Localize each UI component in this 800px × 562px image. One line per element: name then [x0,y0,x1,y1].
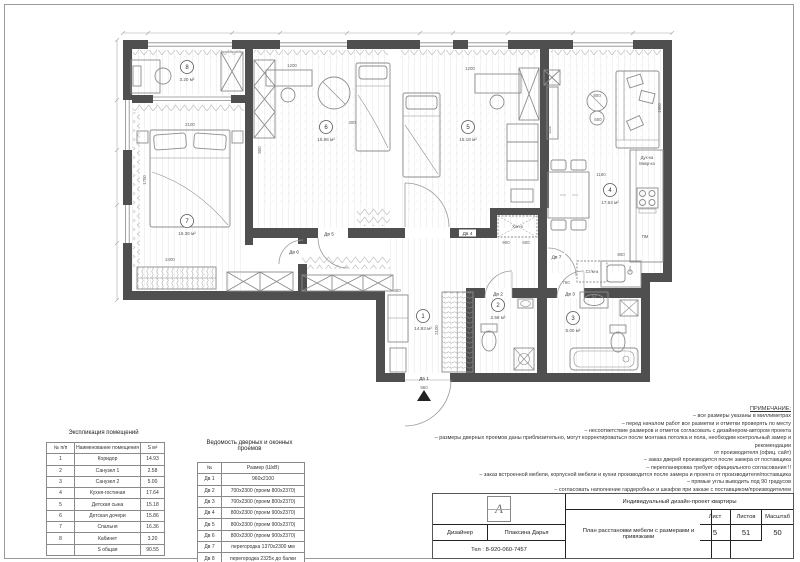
table-row: 4Кухня-гостиная17.64 [47,488,165,499]
sheet-value: 5 [700,525,731,541]
table-row: Дв 6800х2300 (проем 900х2370) [198,530,305,541]
table-row: Дв 8перегородка 2325х до балки [198,553,305,562]
door-label-6: Дв 6 [286,248,302,256]
oven-label: Дух-ка [641,155,654,160]
dim-label: 800 [593,93,601,98]
table-header-row: № п/п Наименование помещения S м² [47,443,165,454]
explication-table: № п/п Наименование помещения S м² 1Корид… [46,442,165,556]
door-label-4: Дв 4 [459,230,476,238]
dim-label: 400 [348,120,356,125]
note-line: – заказ дверей производится после замера… [420,457,791,464]
glass-partition [153,97,231,101]
dim-label: 415 [547,126,552,134]
dim-label: 900 [502,240,510,245]
table-row: 8Кабинет3.20 [47,533,165,544]
wardrobe [302,275,393,291]
svg-text:17.64 м²: 17.64 м² [601,200,619,205]
window [573,40,633,49]
dim-label: 1700 [142,175,147,185]
dim-label: 2100 [434,325,439,335]
dim-label: 1900 [657,103,662,113]
table-row: 7Спальня16.36 [47,522,165,533]
dim-label: 1200 [287,63,297,68]
note-line: – перепланировка требует официального со… [420,465,791,472]
svg-text:14.93 м²: 14.93 м² [414,326,432,331]
table-row: 2Санузел 12.58 [47,465,165,476]
window [280,40,347,49]
door-label-1: Дв 1 [419,376,429,382]
phone-cell: Тел : 8-920-060-7457 [433,541,566,558]
svg-text:16.36 м²: 16.36 м² [178,231,196,236]
door-label-7: Дв 7 [548,253,565,261]
microwave-label: Микр-ка [639,161,655,166]
sheets-value: 51 [731,525,762,541]
titleblock: A Дизайнер Плаксина Дарья Тел : 8-920-06… [432,493,794,559]
table-row: Дв 2700х2300 (проем 800х2370) [198,485,305,496]
col-header: Размер (ШхВ) [222,463,305,474]
floor-plan: 114.93 м² 22.58 м² 35.00 м² 417.64 м² 51… [0,0,800,430]
table-row: Дв 5800х2300 (проем 900х2370) [198,519,305,530]
col-header: № п/п [47,443,75,454]
dim-label: 760 [562,280,570,285]
door-label-2: Дв 2 [493,292,503,298]
col-header: S м² [141,443,165,454]
dim-label: 960 [420,385,428,390]
notes: ПРИМЕЧАНИЕ: – все размеры указаны в милл… [420,406,791,494]
table-row: S общая90.55 [47,544,165,555]
dishwasher-label: ПМ [642,234,649,239]
dim-label: 600 [522,240,530,245]
table-row: 5Детская сына15.18 [47,499,165,510]
table-header-row: № Размер (ШхВ) [198,463,305,474]
window [123,100,132,150]
note-line: – размеры дверных проемов даны приблизит… [420,435,791,450]
window [123,205,132,243]
svg-text:Дв 6: Дв 6 [289,250,299,256]
window [468,40,508,49]
dim-label: 1200 [465,66,475,71]
dim-label: 800 [617,252,625,257]
openings-title: Ведомость дверных и оконных проемов [197,440,302,452]
sheets-label: Листов [731,510,762,525]
col-header: № [198,463,222,474]
door-label-5: Дв 5 [324,232,334,238]
table-row: Дв 7перегородка 1370х2300 мм [198,542,305,553]
entry-arrow [417,390,431,401]
dim-label: 2100 [185,122,195,127]
dim-label: 650 [594,117,602,122]
table-row: 1Коридор14.93 [47,454,165,465]
svg-text:2.58 м²: 2.58 м² [491,315,506,320]
openings-table: № Размер (ШхВ) Дв 1960х2100 Дв 2700х2300… [197,462,305,562]
fridge-label: Хол-к [512,224,523,229]
table-row: Дв 3700х2300 (проем 800х2370) [198,496,305,507]
table-row: 6Детская дочери15.86 [47,510,165,521]
logo-cell: A [433,494,566,525]
svg-text:Дв 4: Дв 4 [463,231,473,237]
svg-text:5.00 м²: 5.00 м² [566,328,581,333]
svg-text:3.20 м²: 3.20 м² [180,77,195,82]
project-title-cell: Индивидуальный дизайн-проект квартиры [566,494,793,510]
drawing-name-cell: План расстановки мебели с размерами и пр… [566,510,712,558]
window [420,40,453,49]
note-line: – заказ встроенной мебели, корпусной меб… [420,472,791,479]
svg-text:15.18 м²: 15.18 м² [459,137,477,142]
titleblock-empty-cell [700,541,731,558]
washer-label: Ст/м-а [586,269,599,274]
door-label-3: Дв 3 [565,292,575,298]
svg-text:Дв 7: Дв 7 [552,255,562,261]
designer-name-cell: Плаксина Дарья [488,525,566,541]
table-row: Дв 1960х2100 [198,474,305,485]
notes-title: ПРИМЕЧАНИЕ: [420,406,791,413]
window [148,40,232,49]
note-line: – перед началом работ все разметки и отм… [420,421,791,428]
scale-value: 50 [762,525,793,540]
drawing-sheet: 114.93 м² 22.58 м² 35.00 м² 417.64 м² 51… [0,0,800,562]
dim-label: 2400 [165,257,175,262]
col-header: Наименование помещения [75,443,141,454]
dim-label: 1180 [596,172,606,177]
designer-label-cell: Дизайнер [433,525,488,541]
logo: A [487,496,511,522]
note-line: – прямые углы выводить под 90 градусов [420,479,791,486]
wardrobe-rail [137,267,216,289]
svg-text:15.86 м²: 15.86 м² [317,137,335,142]
explication-title: Экспликация помещений [46,430,161,436]
scale-label: Масштаб [762,510,793,525]
sheet-label: Лист [700,510,731,525]
hall-wardrobe [442,292,473,372]
floor-hatching [132,49,663,373]
table-row: Дв 4800х2300 (проем 900х2370) [198,508,305,519]
dim-label: 500 [257,146,262,154]
dim-label: 400 [393,288,401,293]
table-row: 3Санузел 25.00 [47,476,165,487]
note-line: – все размеры указаны в миллиметрах [420,413,791,420]
